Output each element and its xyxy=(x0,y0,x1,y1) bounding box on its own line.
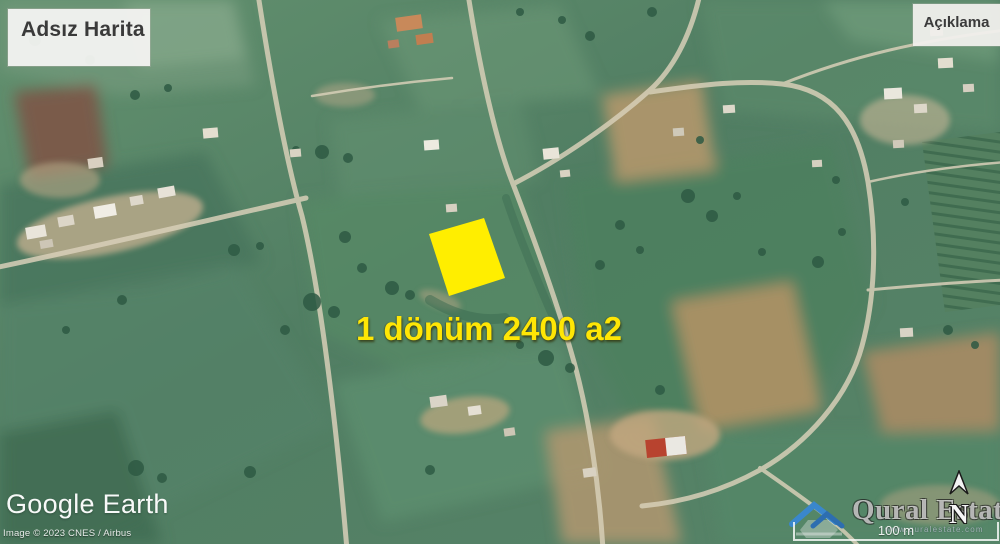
map-title-label: Adsız Harita xyxy=(21,18,145,41)
parcel-area-label: 1 dönüm 2400 a2 xyxy=(356,310,578,348)
imagery-attribution: Image © 2023 CNES / Airbus xyxy=(3,528,131,539)
google-earth-logo: Google Earth xyxy=(6,489,169,520)
scale-label: 100 m xyxy=(878,523,914,538)
compass-n-label: N xyxy=(941,501,977,527)
legend-label: Açıklama xyxy=(924,14,990,31)
map-canvas[interactable]: 1 dönüm 2400 a2 Adsız Harita Açıklama Go… xyxy=(0,0,1000,544)
north-compass[interactable]: N xyxy=(941,470,977,527)
map-title-box[interactable]: Adsız Harita xyxy=(8,9,150,66)
north-arrow-icon xyxy=(941,470,977,496)
legend-button[interactable]: Açıklama xyxy=(913,4,1000,46)
